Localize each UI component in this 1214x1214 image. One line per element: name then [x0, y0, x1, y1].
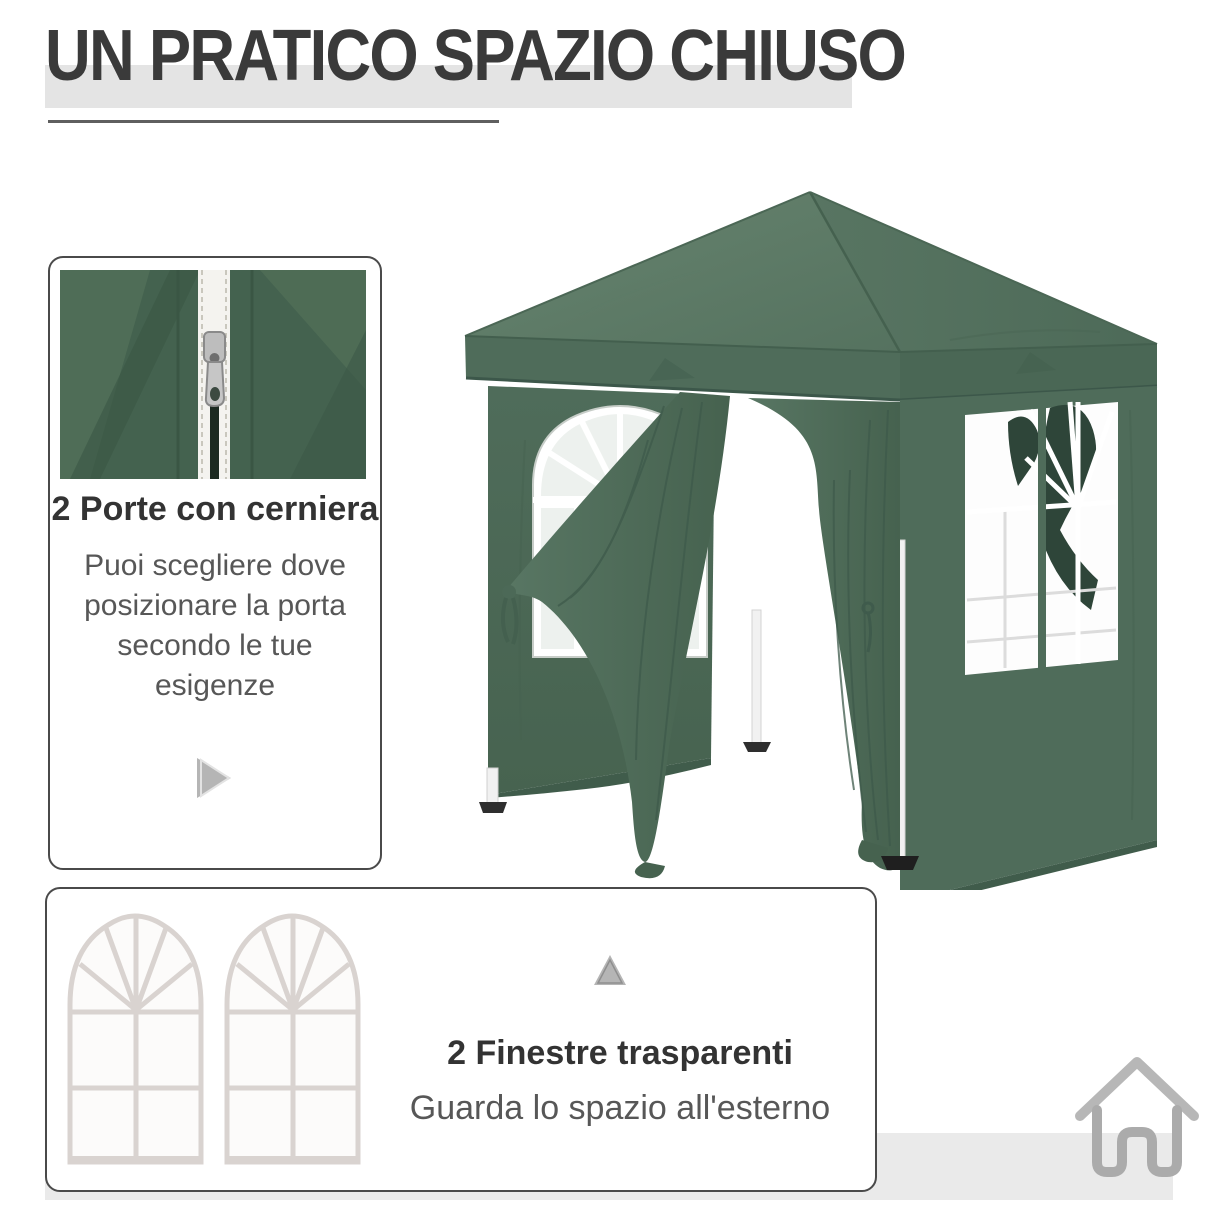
windows-card-body: Guarda lo spazio all'esterno	[360, 1088, 880, 1128]
title-underline	[48, 120, 499, 123]
play-triangle-icon	[195, 756, 233, 800]
doors-card-heading: 2 Porte con cerniera	[50, 490, 380, 529]
gazebo-right-curtain	[748, 398, 900, 870]
house-icon	[1072, 1052, 1202, 1192]
gazebo-right-window-panel	[965, 402, 1118, 675]
doors-card-body: Puoi scegliere dove posizionare la porta…	[50, 546, 380, 706]
feature-card-doors: 2 Porte con cerniera Puoi scegliere dove…	[48, 256, 382, 870]
transparent-windows-photo	[64, 910, 364, 1168]
gazebo-front-foot	[881, 856, 919, 870]
up-triangle-icon	[593, 953, 627, 987]
gazebo-photo	[430, 140, 1214, 890]
zipper-photo	[60, 270, 366, 479]
feature-card-windows: 2 Finestre trasparenti Guarda lo spazio …	[45, 887, 877, 1192]
gazebo-roof	[465, 192, 1157, 352]
gazebo-rear-leg	[743, 610, 771, 752]
window-left	[70, 916, 201, 1164]
window-right	[227, 916, 358, 1164]
windows-card-heading: 2 Finestre trasparenti	[360, 1034, 880, 1073]
page-title: UN PRATICO SPAZIO CHIUSO	[45, 14, 905, 98]
